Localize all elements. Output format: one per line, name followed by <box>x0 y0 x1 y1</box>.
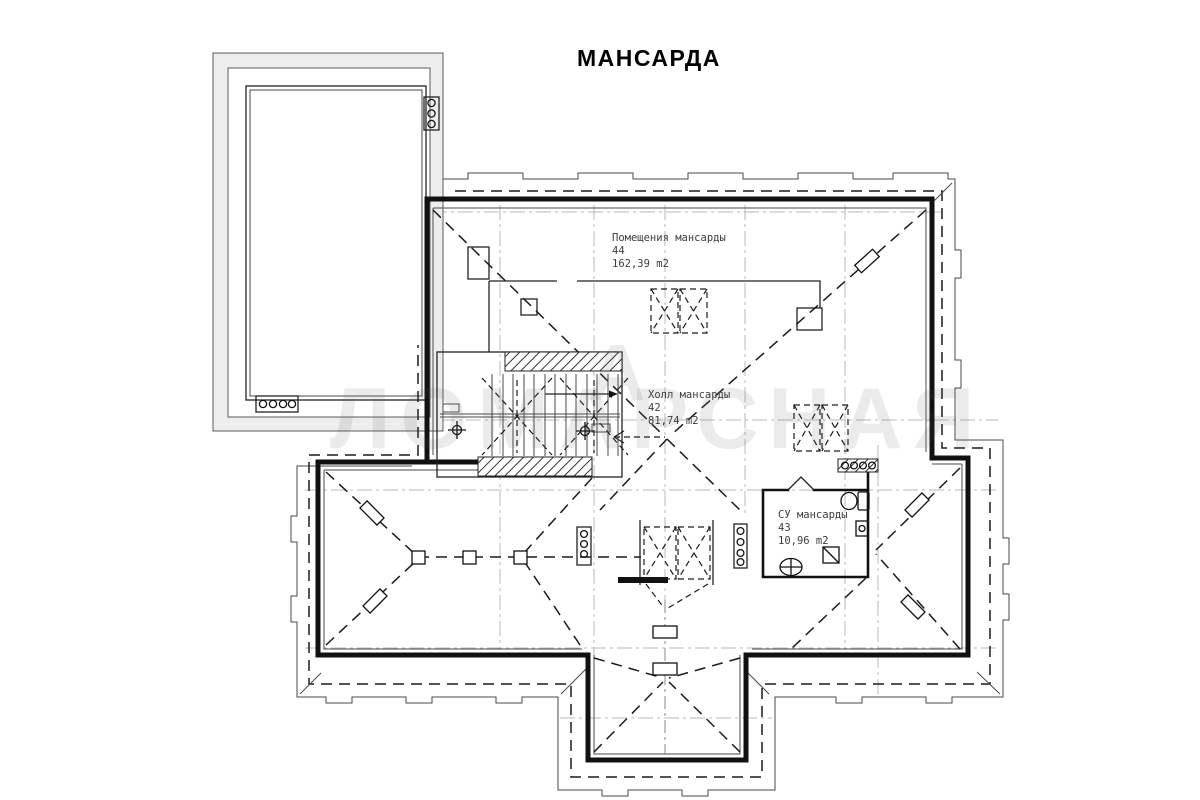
roof-window-icon <box>651 289 707 333</box>
room-name: Помещения мансарды <box>612 232 726 244</box>
urinal-icon <box>856 521 868 536</box>
page-title: МАНСАРДА <box>577 45 721 71</box>
roof-window-icon <box>644 527 710 579</box>
room-label-43: СУ мансарды 43 10,96 m2 <box>778 509 848 547</box>
boiler-icon <box>823 547 839 563</box>
room-number: 44 <box>612 245 625 257</box>
room-label-44: Помещения мансарды 44 162,39 m2 <box>612 232 726 270</box>
room-area: 10,96 m2 <box>778 535 829 547</box>
sink-icon <box>780 559 802 576</box>
floor-plan-page: МАНСАРДА Помещения мансарды 44 162,39 m2… <box>0 0 1200 800</box>
watermark-text: ЛОМАРСНАЯ <box>330 371 984 467</box>
room-number: 43 <box>778 522 791 534</box>
floor-plan-drawing: МАНСАРДА Помещения мансарды 44 162,39 m2… <box>0 0 1200 800</box>
room-name: СУ мансарды <box>778 509 848 521</box>
room-area: 162,39 m2 <box>612 258 669 270</box>
